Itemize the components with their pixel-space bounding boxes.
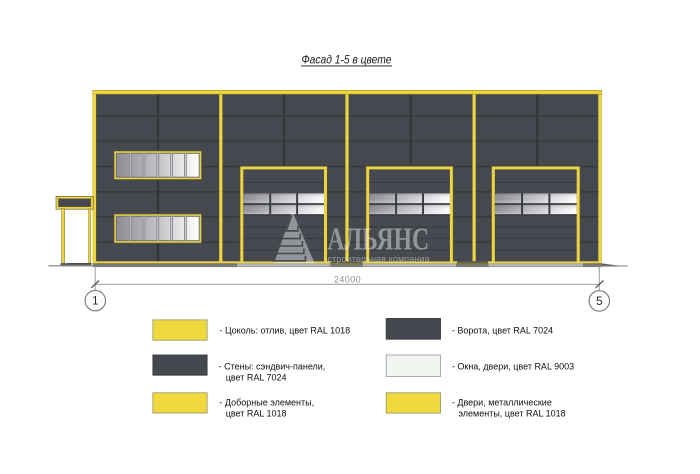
svg-text:- Окна, двери, цвет RAL 9003: - Окна, двери, цвет RAL 9003: [452, 361, 574, 371]
svg-text:- Цоколь: отлив, цвет RAL 1018: - Цоколь: отлив, цвет RAL 1018: [220, 326, 351, 336]
svg-text:цвет RAL 1018: цвет RAL 1018: [226, 409, 287, 419]
svg-text:цвет RAL 7024: цвет RAL 7024: [226, 373, 287, 383]
svg-text:АЛЬЯНС: АЛЬЯНС: [328, 220, 430, 256]
svg-text:строительная компания: строительная компания: [328, 254, 430, 265]
svg-text:- Стены: сэндвич-панели,: - Стены: сэндвич-панели,: [219, 362, 326, 372]
svg-text:5: 5: [596, 296, 602, 308]
svg-text:24000: 24000: [334, 274, 361, 284]
svg-text:элементы, цвет RAL 1018: элементы, цвет RAL 1018: [458, 409, 565, 419]
svg-text:- Доборные элементы,: - Доборные элементы,: [219, 398, 314, 408]
svg-text:- Двери, металлические: - Двери, металлические: [452, 398, 552, 408]
svg-text:- Ворота, цвет RAL 7024: - Ворота, цвет RAL 7024: [452, 325, 553, 335]
svg-text:Фасад 1-5 в цвете: Фасад 1-5 в цвете: [302, 54, 392, 67]
svg-text:1: 1: [92, 296, 98, 308]
